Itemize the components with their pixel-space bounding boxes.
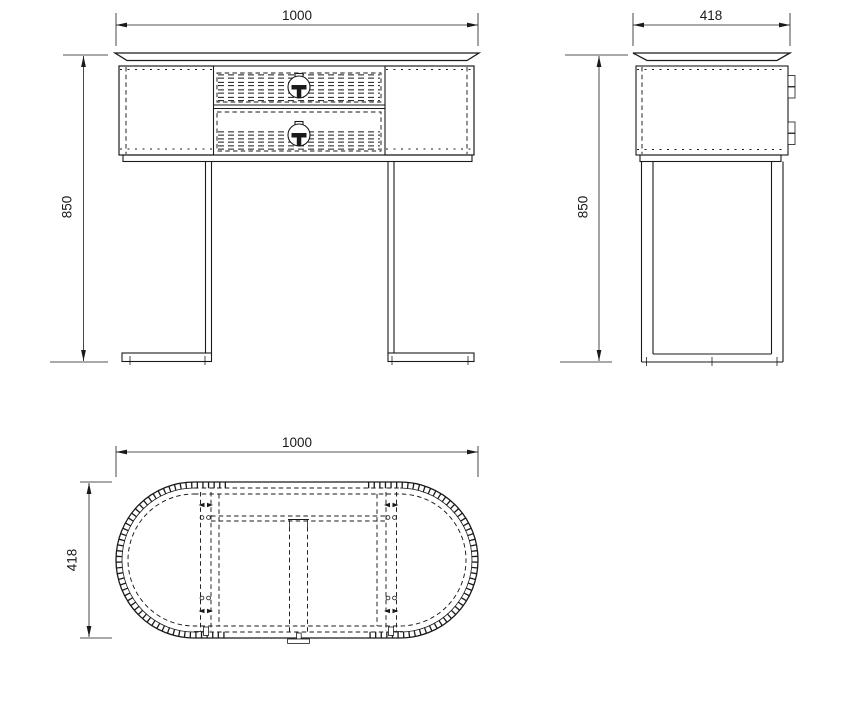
- side-cabinet: [636, 66, 788, 162]
- front-base-board: [123, 155, 472, 162]
- front-height-dimension: 850: [50, 55, 108, 362]
- top-surface: [116, 482, 478, 638]
- front-width-dimension: 1000: [116, 8, 478, 46]
- side-tabletop: [633, 53, 790, 61]
- dim-arrow-icon: [87, 483, 92, 494]
- dim-arrow-icon: [467, 450, 478, 455]
- dim-arrow-icon: [597, 56, 602, 67]
- top-width-dimension: 1000: [116, 435, 478, 477]
- technical-drawing-canvas: 1000 850: [0, 0, 864, 702]
- top-knob-column: [288, 520, 309, 634]
- front-lower-drawer: [217, 112, 381, 151]
- top-hidden-structure: [194, 492, 403, 643]
- top-hidden-rim: [128, 494, 466, 626]
- top-slat-band: [119, 485, 226, 635]
- front-tabletop: [115, 53, 479, 61]
- dim-arrow-icon: [633, 23, 644, 28]
- side-height-dimension: 850: [560, 55, 628, 362]
- front-right-leg: [388, 162, 474, 366]
- dim-arrow-icon: [779, 23, 790, 28]
- lower-drawer-knob[interactable]: [288, 122, 310, 147]
- dim-arrow-icon: [87, 626, 92, 637]
- front-height-dimension-label: 850: [60, 196, 75, 219]
- front-upper-drawer: [217, 73, 381, 102]
- front-view: 1000 850: [50, 8, 479, 365]
- side-legs: [642, 162, 784, 367]
- front-left-foot: [122, 353, 212, 362]
- front-cabinet: [119, 66, 474, 162]
- drawing-svg: 1000 850: [0, 0, 864, 702]
- dim-arrow-icon: [597, 350, 602, 361]
- side-view: 418 850: [560, 8, 795, 366]
- top-depth-dimension: 418: [65, 482, 113, 638]
- dim-arrow-icon: [81, 56, 86, 67]
- side-drawer-knob-tabs: [788, 76, 795, 145]
- top-depth-dimension-label: 418: [65, 549, 80, 572]
- side-slats: [636, 66, 788, 155]
- top-width-dimension-label: 1000: [282, 435, 312, 450]
- top-slat-band: [368, 485, 475, 635]
- front-left-slats: [119, 66, 214, 155]
- dim-arrow-icon: [116, 450, 127, 455]
- front-right-foot: [388, 353, 474, 362]
- side-width-dimension-label: 418: [700, 8, 723, 23]
- side-base-board: [640, 155, 781, 162]
- fastener-holes: [200, 516, 396, 600]
- side-height-dimension-label: 850: [576, 196, 591, 219]
- front-width-dimension-label: 1000: [282, 8, 312, 23]
- dim-arrow-icon: [116, 23, 127, 28]
- top-view: 1000 418: [65, 435, 479, 643]
- dim-arrow-icon: [467, 23, 478, 28]
- dim-arrow-icon: [81, 350, 86, 361]
- top-outline: [116, 482, 478, 638]
- side-width-dimension: 418: [633, 8, 790, 46]
- upper-drawer-knob[interactable]: [288, 74, 310, 99]
- front-right-slats: [385, 66, 474, 155]
- front-left-leg: [122, 162, 212, 366]
